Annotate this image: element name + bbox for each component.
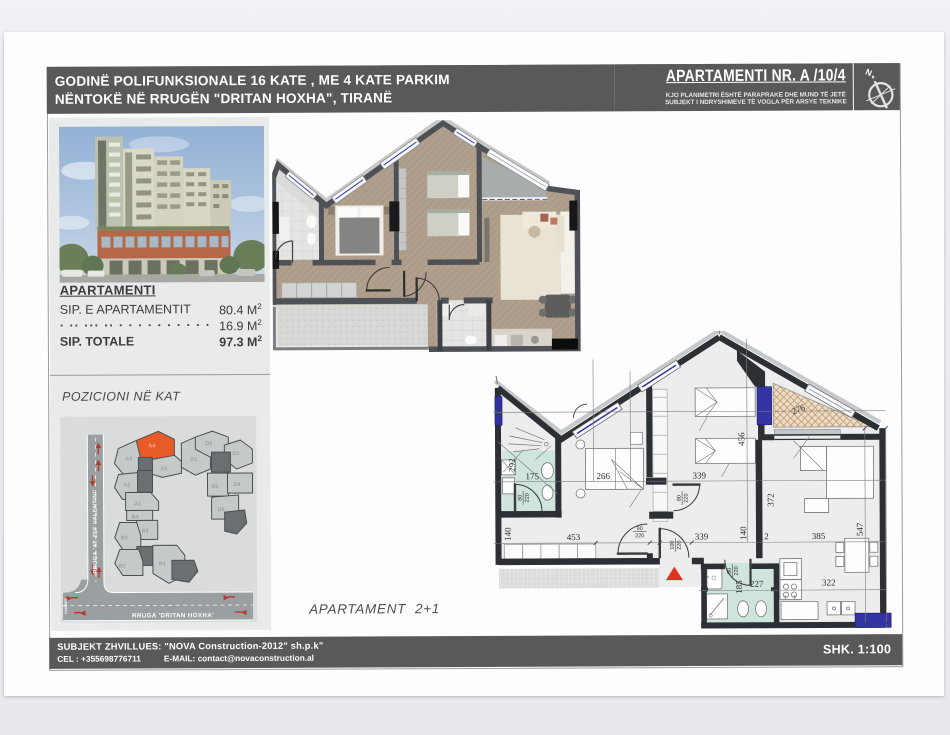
svg-text:RRUGA 'AT ZEF VALENTINI': RRUGA 'AT ZEF VALENTINI' [93,489,99,573]
svg-text:B2: B2 [119,564,126,570]
svg-text:175: 175 [525,471,539,481]
svg-text:A3: A3 [125,456,132,462]
svg-text:372: 372 [766,493,776,507]
svg-text:80: 80 [677,495,683,501]
svg-text:D5: D5 [218,507,225,513]
svg-text:220: 220 [677,540,683,549]
svg-text:140: 140 [503,527,513,541]
svg-text:453: 453 [567,532,581,542]
svg-text:292: 292 [507,458,517,472]
svg-text:100: 100 [670,541,676,550]
svg-text:A4: A4 [148,443,155,449]
svg-text:220: 220 [684,493,690,502]
svg-text:339: 339 [695,531,709,541]
svg-text:266: 266 [596,471,610,481]
svg-text:185: 185 [734,580,744,594]
svg-text:220: 220 [635,533,644,539]
svg-text:B4: B4 [132,514,139,520]
svg-text:B3: B3 [121,536,128,542]
svg-text:90: 90 [637,526,643,532]
svg-text:A2: A2 [124,483,131,489]
svg-text:547: 547 [855,522,865,536]
svg-text:RRUGA 'DRITAN HOXHA': RRUGA 'DRITAN HOXHA' [132,612,214,619]
svg-text:220: 220 [525,493,531,502]
svg-text:D4: D4 [234,482,241,488]
svg-text:220: 220 [734,566,740,575]
svg-text:A5: A5 [160,466,167,472]
svg-text:D1: D1 [190,457,197,463]
svg-text:80: 80 [518,495,524,501]
svg-text:12: 12 [760,531,769,541]
svg-text:DURRES: DURRES [64,598,68,614]
svg-text:D3: D3 [232,451,239,457]
svg-text:385: 385 [812,531,826,541]
svg-text:140: 140 [738,526,748,540]
svg-text:B1: B1 [159,561,166,567]
svg-text:80: 80 [727,568,733,574]
svg-text:227: 227 [750,579,764,589]
svg-text:D2: D2 [205,441,212,447]
svg-text:339: 339 [692,470,706,480]
svg-text:A1: A1 [135,501,142,507]
svg-text:456: 456 [736,432,746,446]
svg-text:B5: B5 [142,528,149,534]
svg-text:322: 322 [822,577,836,587]
svg-text:D6: D6 [212,484,219,490]
